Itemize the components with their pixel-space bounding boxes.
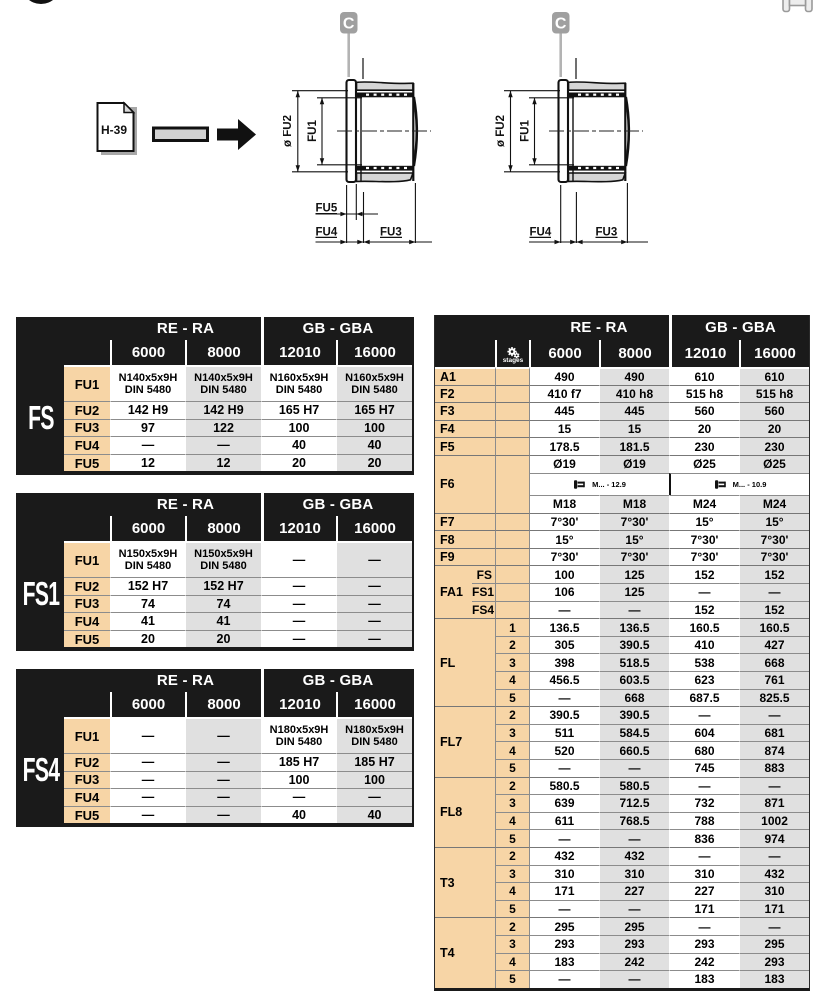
svg-text:FU4: FU4 — [316, 226, 338, 238]
svg-text:ø FU2: ø FU2 — [495, 115, 507, 147]
svg-text:FU1: FU1 — [307, 120, 319, 142]
svg-text:H-39: H-39 — [101, 123, 127, 137]
svg-text:FU4: FU4 — [530, 226, 552, 238]
svg-text:ø FU2: ø FU2 — [283, 115, 294, 147]
svg-text:C: C — [555, 16, 567, 33]
svg-text:C: C — [343, 16, 355, 33]
svg-text:FU3: FU3 — [380, 226, 402, 238]
svg-text:FU3: FU3 — [596, 226, 618, 238]
svg-text:FU5: FU5 — [316, 203, 338, 215]
svg-text:FU1: FU1 — [520, 120, 532, 142]
